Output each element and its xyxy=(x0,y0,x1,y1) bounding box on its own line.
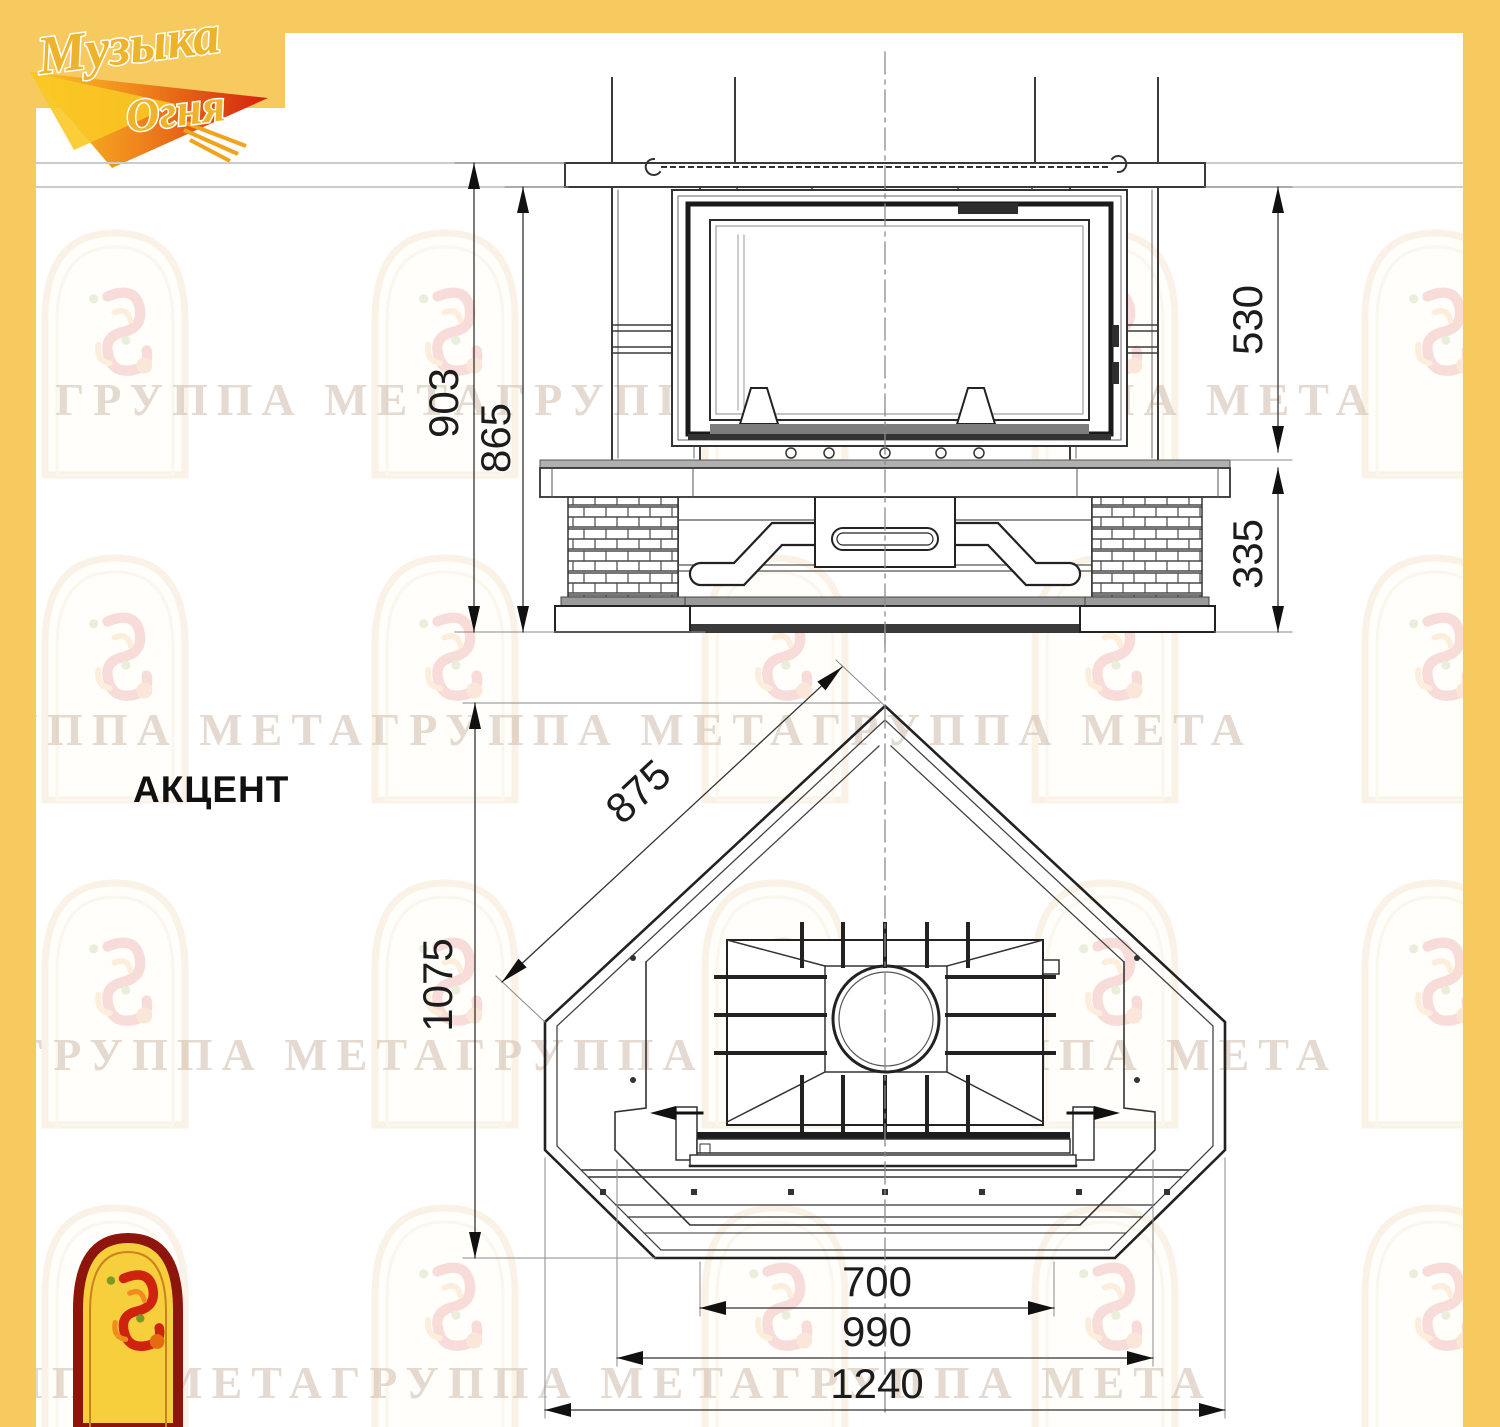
model-title: АКЦЕНТ xyxy=(133,769,289,810)
dim-label-mantel-height: 865 xyxy=(472,403,519,473)
dim-label-base-height: 335 xyxy=(1224,519,1271,589)
frame-left-band xyxy=(0,0,36,1427)
brick-pillar-left xyxy=(568,497,678,597)
door-post-left xyxy=(676,1107,697,1160)
dim-label-overall-width: 1240 xyxy=(830,1360,923,1407)
door-handle-icon xyxy=(1112,362,1119,384)
watermark-text: ГРУППА МЕТАГРУППА МЕТАГРУППА МЕТА xyxy=(0,704,1253,755)
flue-collar-icon xyxy=(833,966,939,1072)
door-handle-icon xyxy=(1112,325,1119,347)
drawing-canvas: ГРУППА МЕТАГРУППА МЕТАГРУППА МЕТА ГРУППА… xyxy=(0,0,1500,1427)
firebox xyxy=(672,190,1127,458)
ash-lip xyxy=(710,424,1089,434)
dim-label-depth: 1075 xyxy=(414,938,461,1031)
door-front-bar xyxy=(697,1132,1070,1139)
firebox-brand-plate xyxy=(958,203,1018,214)
dim-label-inner-width: 990 xyxy=(842,1308,912,1355)
dim-label-total-height: 903 xyxy=(420,368,467,438)
frame-right-band xyxy=(1463,0,1500,1427)
damper-lever xyxy=(1043,960,1059,974)
watermark-text: ГРУППА МЕТАГРУППА МЕТАГРУППА МЕТА xyxy=(15,1029,1338,1080)
meta-logo xyxy=(78,1238,178,1427)
brick-pillar-right xyxy=(1092,497,1202,597)
plinth-right xyxy=(1080,606,1215,632)
scanned-drawing-page: ГРУППА МЕТАГРУППА МЕТАГРУППА МЕТА ГРУППА… xyxy=(0,0,1500,1427)
plinth-left xyxy=(555,606,690,632)
dim-label-firebox-height: 530 xyxy=(1224,285,1271,355)
dim-label-insert-front-width: 700 xyxy=(842,1258,912,1305)
door-post-right xyxy=(1073,1107,1094,1160)
